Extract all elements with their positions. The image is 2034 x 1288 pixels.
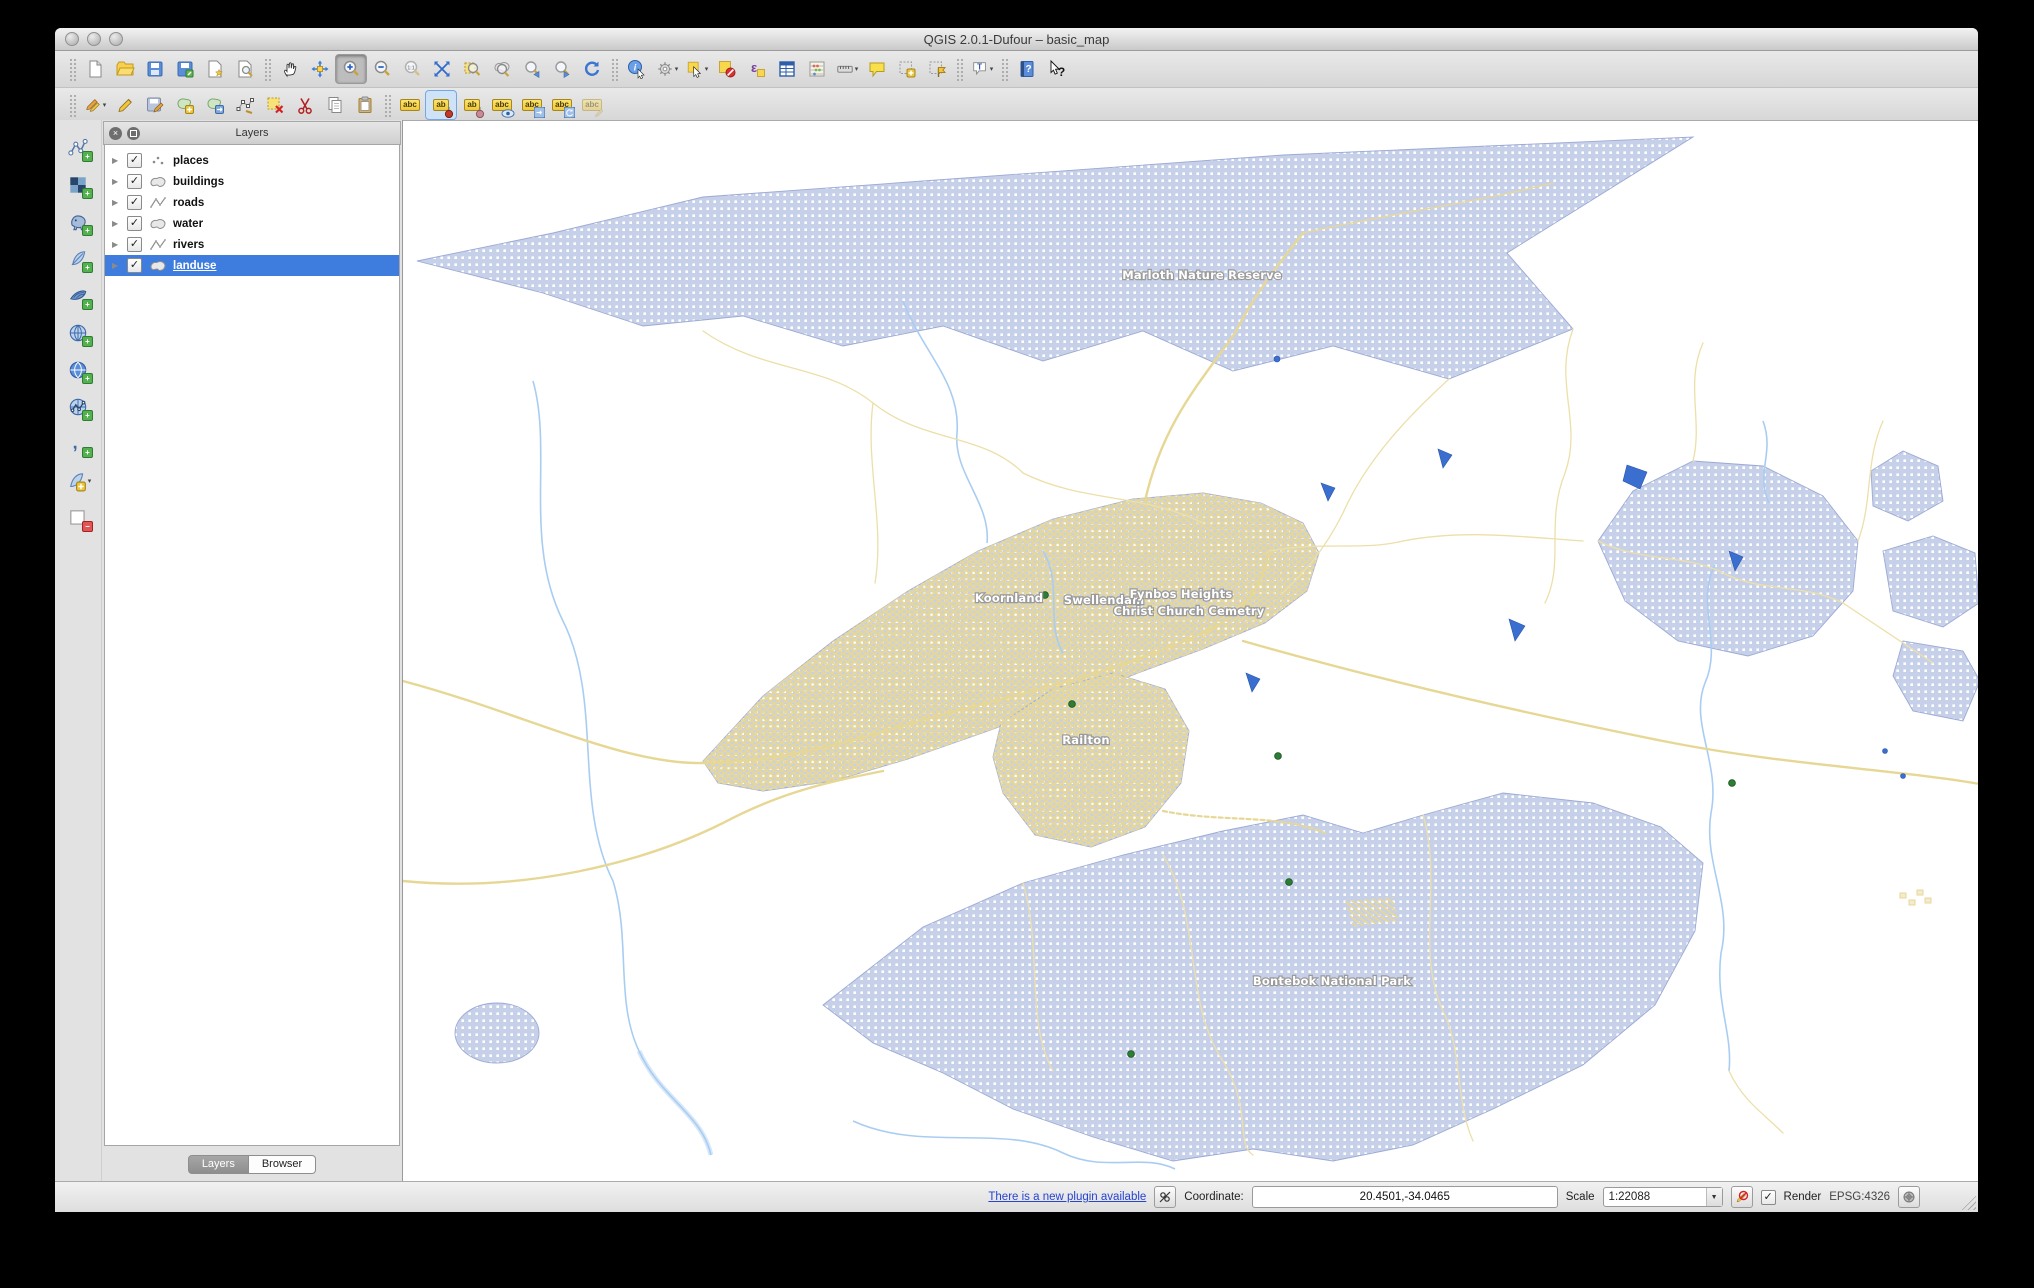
current-edits-button[interactable]: ▾ (80, 91, 110, 119)
save-layer-edits-button[interactable] (140, 91, 170, 119)
plus-badge-icon: + (82, 188, 93, 199)
dropdown-arrow-icon[interactable]: ▾ (990, 65, 994, 73)
qgis-window: QGIS 2.0.1-Dufour – basic_map 1:1 i ▾ ▾ … (55, 28, 1978, 1212)
pan-map-button[interactable] (275, 55, 305, 83)
zoom-last-button[interactable] (517, 55, 547, 83)
rotate-label-button[interactable]: abc (547, 91, 577, 119)
layer-type-icon (149, 238, 173, 252)
zoom-selection-icon (462, 59, 482, 79)
move-label-button[interactable]: abc (517, 91, 547, 119)
red-pin-icon (444, 106, 454, 118)
place-dot (1275, 753, 1282, 760)
copy-icon (325, 95, 345, 115)
map-label: Bontebok National Park (1253, 974, 1411, 988)
svg-text:?: ? (1025, 64, 1031, 75)
plugin-glyph-icon (1158, 1190, 1172, 1204)
zoom-in-icon (341, 59, 361, 79)
scale-value: 1:22088 (1604, 1191, 1706, 1203)
abacus-icon (807, 59, 827, 79)
layer-row-places[interactable]: ▶✓places (105, 150, 399, 171)
show-bookmarks-button[interactable] (922, 55, 952, 83)
open-project-button[interactable] (110, 55, 140, 83)
zoom-full-button[interactable] (427, 55, 457, 83)
plus-badge-icon: + (82, 225, 93, 236)
layers-panel-title: Layers (104, 127, 400, 139)
new-shapefile-icon (65, 470, 87, 492)
expand-arrow-icon[interactable]: ▶ (112, 156, 127, 165)
save-project-as-button[interactable] (170, 55, 200, 83)
rotate-icon (564, 107, 575, 118)
add-spatialite-layer-button[interactable]: + (63, 245, 93, 273)
identify-icon: i (627, 59, 647, 79)
new-bookmark-icon (897, 59, 917, 79)
plus-badge-icon: + (82, 299, 93, 310)
select-by-expression-button[interactable]: ε (742, 55, 772, 83)
svg-text:?: ? (1058, 65, 1065, 79)
open-folder-icon (115, 59, 135, 79)
add-wcs-layer-button[interactable]: + (63, 356, 93, 384)
digitizing-toolbar: ▾ abc ab ab abc abc abc abc (55, 88, 1978, 123)
layer-visibility-checkbox[interactable]: ✓ (127, 258, 142, 273)
toolbar-handle[interactable] (1000, 57, 1009, 81)
svg-text:,: , (73, 433, 78, 452)
ruler-icon (836, 60, 854, 78)
layers-panel-header: × Layers (103, 121, 401, 145)
save-as-icon (175, 59, 195, 79)
layer-name: buildings (173, 176, 224, 188)
svg-text:1:1: 1:1 (407, 66, 414, 72)
remove-layer-button[interactable]: − (63, 504, 93, 532)
labeling-tag-icon: abc (400, 99, 420, 111)
toolbar-handle[interactable] (383, 93, 392, 117)
map-label: Christ Church Cemetry (1114, 604, 1265, 618)
text-annotation-icon: T (971, 60, 989, 78)
expand-arrow-icon[interactable]: ▶ (112, 261, 127, 270)
new-project-button[interactable] (80, 55, 110, 83)
panel-tab-layers[interactable]: Layers (188, 1155, 249, 1174)
crs-globe-icon (1902, 1190, 1916, 1204)
save-project-button[interactable] (140, 55, 170, 83)
plus-badge-icon: + (82, 373, 93, 384)
toolbar-handle[interactable] (955, 57, 964, 81)
new-composer-icon (205, 59, 225, 79)
paste-icon (355, 95, 375, 115)
refresh-icon (582, 59, 602, 79)
layer-visibility-checkbox[interactable]: ✓ (127, 153, 142, 168)
dropdown-arrow-icon[interactable]: ▾ (675, 65, 679, 73)
window-title: QGIS 2.0.1-Dufour – basic_map (55, 32, 1978, 47)
select-features-button[interactable]: ▾ (682, 55, 712, 83)
composer-manager-icon (235, 59, 255, 79)
layers-list: ▶✓places▶✓buildings▶✓roads▶✓water▶✓river… (104, 144, 400, 1146)
dropdown-arrow-icon[interactable]: ▾ (88, 477, 92, 485)
new-file-icon (85, 59, 105, 79)
crs-button[interactable] (1898, 1186, 1920, 1208)
add-raster-layer-button[interactable]: + (63, 171, 93, 199)
dropdown-arrow-icon[interactable]: ▾ (855, 65, 859, 73)
add-feature-button[interactable] (170, 91, 200, 119)
layers-panel: × Layers ▶✓places▶✓buildings▶✓roads▶✓wat… (102, 120, 403, 1182)
highlight-pinned-labels-button[interactable]: ab (457, 91, 487, 119)
zoom-full-icon (432, 59, 452, 79)
pan-selection-icon (310, 59, 330, 79)
stop-render-icon (1734, 1190, 1749, 1205)
epsilon-icon: ε (747, 59, 767, 79)
layer-type-icon (149, 154, 173, 168)
manage-layers-toolbar: + + + + + + + + ,+ ▾ − (55, 120, 102, 1182)
layer-name: roads (173, 197, 204, 209)
whats-this-button[interactable]: ? (1042, 55, 1072, 83)
svg-text:T: T (977, 62, 982, 71)
add-vector-layer-button[interactable]: + (63, 134, 93, 162)
node-tool-icon (235, 95, 255, 115)
change-label-button[interactable]: abc (577, 91, 607, 119)
layer-type-icon (149, 175, 173, 189)
select-rectangle-icon (686, 60, 704, 78)
save-edits-icon (145, 95, 165, 115)
move-feature-button[interactable] (200, 91, 230, 119)
bookmarks-icon (927, 59, 947, 79)
plugin-available-link[interactable]: There is a new plugin available (988, 1191, 1146, 1203)
delete-selected-button[interactable] (260, 91, 290, 119)
map-label: Marloth Nature Reserve (1122, 268, 1282, 282)
pan-to-selection-button[interactable] (305, 55, 335, 83)
zoom-to-layer-button[interactable] (487, 55, 517, 83)
layer-name: water (173, 218, 203, 230)
layer-visibility-checkbox[interactable]: ✓ (127, 195, 142, 210)
copy-features-button[interactable] (320, 91, 350, 119)
render-checkbox[interactable]: ✓ (1761, 1190, 1776, 1205)
help-contents-button[interactable]: ? (1012, 55, 1042, 83)
layer-name: rivers (173, 239, 204, 251)
identify-button[interactable]: i (622, 55, 652, 83)
layer-visibility-checkbox[interactable]: ✓ (127, 216, 142, 231)
add-wms-layer-button[interactable]: + (63, 319, 93, 347)
cut-features-button[interactable] (290, 91, 320, 119)
statusbar: There is a new plugin available Coordina… (55, 1181, 1978, 1212)
move-arrow-icon (534, 107, 545, 118)
move-feature-icon (205, 95, 225, 115)
attribute-table-icon (777, 59, 797, 79)
add-wfs-layer-button[interactable]: + (63, 393, 93, 421)
buildings-cluster (1900, 890, 1931, 905)
scissors-icon (295, 95, 315, 115)
toolbar-handle[interactable] (263, 57, 272, 81)
layer-visibility-checkbox[interactable]: ✓ (127, 237, 142, 252)
place-dot (1286, 879, 1293, 886)
plus-badge-icon: + (82, 336, 93, 347)
panel-tab-browser[interactable]: Browser (249, 1155, 316, 1174)
new-bookmark-button[interactable] (892, 55, 922, 83)
zoom-last-icon (522, 59, 542, 79)
plugin-icon[interactable] (1154, 1186, 1176, 1208)
zoom-native-button[interactable]: 1:1 (397, 55, 427, 83)
pencil-icon (115, 95, 135, 115)
add-postgis-layer-button[interactable]: + (63, 208, 93, 236)
toolbar-handle[interactable] (610, 57, 619, 81)
toolbar-handle[interactable] (68, 93, 77, 117)
zoom-next-icon (552, 59, 572, 79)
current-edits-icon (84, 96, 102, 114)
plus-badge-icon: + (82, 447, 93, 458)
expand-arrow-icon[interactable]: ▶ (112, 198, 127, 207)
map-tips-icon (867, 59, 887, 79)
add-delimited-text-button[interactable]: ,+ (63, 430, 93, 458)
plus-badge-icon: + (82, 151, 93, 162)
measure-button[interactable]: ▾ (832, 55, 862, 83)
layer-type-icon (149, 196, 173, 210)
layer-row-rivers[interactable]: ▶✓rivers (105, 234, 399, 255)
add-mssql-layer-button[interactable]: + (63, 282, 93, 310)
zoom-next-button[interactable] (547, 55, 577, 83)
expand-arrow-icon[interactable]: ▶ (112, 219, 127, 228)
deselect-features-button[interactable] (712, 55, 742, 83)
place-dot (1729, 780, 1736, 787)
dropdown-arrow-icon[interactable]: ▾ (103, 101, 107, 109)
map-label: Fynbos Heights (1130, 587, 1233, 601)
whats-this-icon: ? (1047, 59, 1067, 79)
layer-type-icon (149, 259, 173, 273)
show-hide-labels-button[interactable]: abc (487, 91, 517, 119)
layer-name: landuse (173, 260, 216, 272)
new-shapefile-button[interactable]: ▾ (63, 467, 93, 495)
coordinate-input[interactable] (1252, 1186, 1558, 1208)
toolbar-handle[interactable] (68, 57, 77, 81)
toggle-editing-button[interactable] (110, 91, 140, 119)
composer-manager-button[interactable] (230, 55, 260, 83)
expand-arrow-icon[interactable]: ▶ (112, 240, 127, 249)
crs-status: EPSG:4326 (1829, 1191, 1890, 1203)
layer-row-buildings[interactable]: ▶✓buildings (105, 171, 399, 192)
expand-arrow-icon[interactable]: ▶ (112, 177, 127, 186)
pink-pin-icon (475, 106, 485, 118)
layer-name: places (173, 155, 209, 167)
panel-tabs: LayersBrowser (102, 1155, 402, 1174)
pencil-badge-icon (594, 107, 605, 118)
coordinate-label: Coordinate: (1184, 1191, 1243, 1203)
field-calculator-button[interactable] (802, 55, 832, 83)
node-tool-button[interactable] (230, 91, 260, 119)
main-toolbar: 1:1 i ▾ ▾ ε ▾ T▾ ? ? (55, 51, 1978, 88)
render-label: Render (1784, 1191, 1822, 1203)
zoom-layer-icon (492, 59, 512, 79)
layer-row-water[interactable]: ▶✓water (105, 213, 399, 234)
zoom-native-icon: 1:1 (402, 59, 422, 79)
zoom-in-button[interactable] (335, 54, 367, 84)
add-feature-icon (175, 95, 195, 115)
map-tips-button[interactable] (862, 55, 892, 83)
layer-row-landuse[interactable]: ▶✓landuse (105, 255, 399, 276)
pin-unpin-labels-button[interactable]: ab (425, 90, 457, 120)
save-icon (145, 59, 165, 79)
labeling-options-button[interactable]: abc (395, 91, 425, 119)
place-dot (1069, 701, 1076, 708)
map-svg: Marloth Nature ReserveKoornlandSwellenda… (403, 121, 1978, 1183)
minus-badge-icon: − (82, 521, 93, 532)
open-attribute-table-button[interactable] (772, 55, 802, 83)
place-dot (1128, 1051, 1135, 1058)
plus-badge-icon: + (82, 262, 93, 273)
new-composer-button[interactable] (200, 55, 230, 83)
stop-render-button[interactable] (1731, 1186, 1753, 1208)
zoom-to-selection-button[interactable] (457, 55, 487, 83)
layer-type-icon (149, 217, 173, 231)
zoom-out-button[interactable] (367, 55, 397, 83)
layer-visibility-checkbox[interactable]: ✓ (127, 174, 142, 189)
chevron-down-icon[interactable]: ▼ (1706, 1188, 1722, 1206)
delete-selected-icon (265, 95, 285, 115)
layer-row-roads[interactable]: ▶✓roads (105, 192, 399, 213)
zoom-out-icon (372, 59, 392, 79)
refresh-map-button[interactable] (577, 55, 607, 83)
map-label: Railton (1062, 733, 1109, 747)
svg-text:ε: ε (751, 60, 757, 75)
eye-icon (501, 109, 515, 118)
map-canvas[interactable]: Marloth Nature ReserveKoornlandSwellenda… (403, 120, 1978, 1182)
deselect-icon (717, 59, 737, 79)
gear-icon (656, 60, 674, 78)
titlebar[interactable]: QGIS 2.0.1-Dufour – basic_map (55, 28, 1978, 51)
plus-badge-icon: + (82, 410, 93, 421)
scale-combo[interactable]: 1:22088 ▼ (1603, 1187, 1723, 1207)
run-feature-action-button[interactable]: ▾ (652, 55, 682, 83)
help-book-icon: ? (1017, 59, 1037, 79)
dropdown-arrow-icon[interactable]: ▾ (705, 65, 709, 73)
pan-hand-icon (280, 59, 300, 79)
text-annotation-button[interactable]: T▾ (967, 55, 997, 83)
paste-features-button[interactable] (350, 91, 380, 119)
scale-label: Scale (1566, 1191, 1595, 1203)
map-label: Koornland (975, 591, 1043, 605)
